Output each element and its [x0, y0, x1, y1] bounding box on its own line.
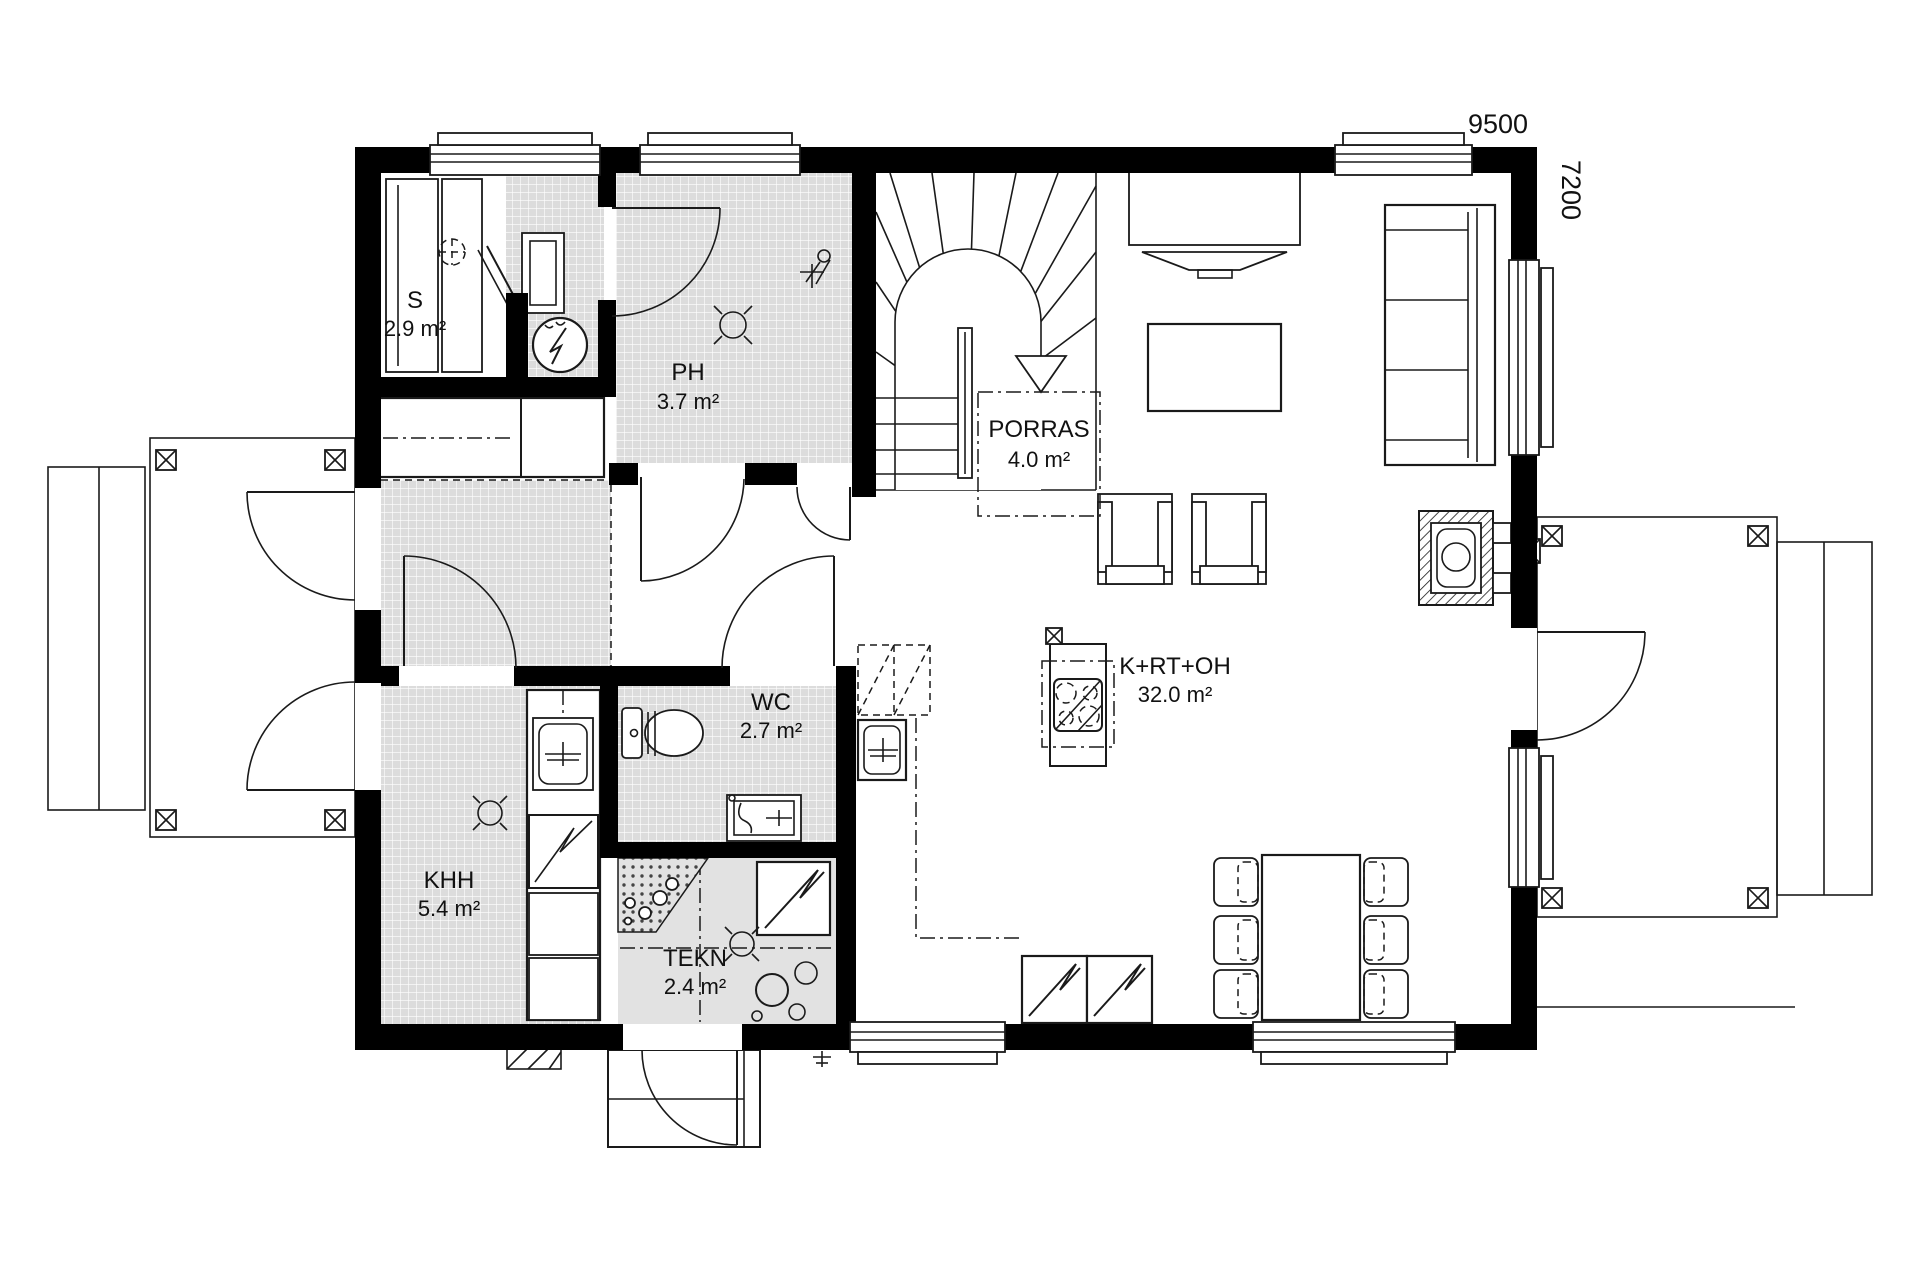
post-icon — [1748, 526, 1768, 546]
dining-chair — [1214, 858, 1258, 906]
wall — [598, 173, 616, 207]
window — [430, 133, 600, 175]
sauna-bench — [386, 179, 438, 372]
room-area-sauna: 2.9 m² — [384, 316, 446, 341]
door-opening — [623, 1024, 742, 1050]
dining-chair — [1364, 916, 1408, 964]
tall-cabinet-fridge-icon — [858, 645, 930, 715]
dining-chair — [1364, 970, 1408, 1018]
bathroom-hall-door — [641, 477, 744, 581]
terrace-door — [1537, 632, 1645, 740]
post-icon — [1046, 628, 1062, 644]
living-passage-door — [797, 487, 850, 540]
room-label-utility: KHH — [424, 867, 475, 894]
window — [1335, 133, 1472, 175]
utility-sink-icon — [533, 718, 593, 790]
living-room-furniture — [1098, 170, 1540, 605]
door-opening — [355, 683, 381, 790]
window — [640, 133, 800, 175]
level-marker-icon — [813, 1051, 831, 1067]
outside-step — [507, 1048, 561, 1069]
water-heater-icon — [533, 318, 587, 372]
dining-chair — [1214, 970, 1258, 1018]
room-label-technical: TEKN — [663, 945, 727, 972]
wall — [600, 842, 856, 858]
wall — [609, 463, 638, 485]
toilet-icon — [622, 708, 703, 758]
room-area-living: 32.0 m² — [1138, 682, 1213, 707]
dishwasher-icon — [1022, 956, 1087, 1023]
left-porch — [150, 438, 355, 837]
dining-table — [1262, 855, 1360, 1020]
room-label-staircase: PORRAS — [988, 416, 1089, 443]
floor-plan-page: S 2.9 m² PH 3.7 m² PORRAS 4.0 m² WC 2.7 … — [0, 0, 1920, 1280]
utility-cabinet — [529, 958, 598, 1020]
post-icon — [325, 450, 345, 470]
room-label-bathroom: PH — [671, 359, 704, 386]
left-ramp — [48, 467, 145, 810]
floor-bathroom — [616, 173, 852, 463]
window — [1253, 1022, 1455, 1064]
dining-chair — [1364, 858, 1408, 906]
wall — [598, 300, 616, 397]
kitchen-fixtures — [858, 628, 1152, 1023]
window — [1509, 260, 1553, 455]
oven-icon — [1087, 956, 1152, 1023]
sofa — [1385, 205, 1495, 465]
window — [850, 1022, 1005, 1064]
right-terrace — [1537, 517, 1777, 917]
tv-stand — [1129, 170, 1300, 278]
floor-hallway — [381, 480, 611, 666]
room-area-bathroom: 3.7 m² — [657, 389, 719, 414]
window — [1509, 748, 1553, 887]
armchair — [1192, 494, 1266, 584]
post-icon — [156, 450, 176, 470]
room-area-utility: 5.4 m² — [418, 896, 480, 921]
porch-door — [247, 682, 355, 790]
door-opening — [355, 488, 381, 610]
room-label-wc: WC — [751, 689, 791, 716]
dining-chair — [1214, 916, 1258, 964]
wall — [836, 666, 856, 1024]
shower-partition — [522, 233, 564, 313]
room-label-living: K+RT+OH — [1119, 653, 1231, 680]
washing-machine-icon — [529, 815, 598, 888]
kitchen-island — [1042, 628, 1114, 766]
wall — [745, 463, 797, 485]
dimension-width: 9500 — [1468, 109, 1528, 139]
washbasin-icon — [727, 795, 801, 841]
post-icon — [1542, 526, 1562, 546]
counter-edge — [916, 718, 1020, 938]
cooktop-icon — [1054, 679, 1102, 731]
utility-cabinet — [529, 893, 598, 955]
dining-set — [1214, 855, 1408, 1020]
room-area-staircase: 4.0 m² — [1008, 447, 1070, 472]
dimension-height: 7200 — [1556, 160, 1586, 220]
sauna-fixtures — [386, 179, 516, 372]
sauna-bench — [442, 179, 482, 372]
wall — [852, 173, 876, 497]
wall — [506, 293, 528, 397]
post-icon — [156, 810, 176, 830]
electrical-panel-icon — [757, 862, 830, 935]
entrance-door — [642, 1050, 737, 1145]
fireplace-icon — [1419, 511, 1511, 605]
room-area-wc: 2.7 m² — [740, 718, 802, 743]
post-icon — [1748, 888, 1768, 908]
wall — [600, 686, 618, 858]
room-area-technical: 2.4 m² — [664, 974, 726, 999]
floor-plan-drawing: S 2.9 m² PH 3.7 m² PORRAS 4.0 m² WC 2.7 … — [0, 0, 1920, 1280]
post-icon — [325, 810, 345, 830]
wall — [514, 666, 730, 686]
porch-door — [247, 492, 355, 600]
room-label-sauna: S — [407, 287, 423, 314]
coffee-table — [1148, 324, 1281, 411]
kitchen-sink-icon — [858, 720, 906, 780]
armchair — [1098, 494, 1172, 584]
door-opening — [1511, 628, 1537, 730]
wc-door — [722, 556, 834, 668]
post-icon — [1542, 888, 1562, 908]
wall — [381, 377, 604, 397]
